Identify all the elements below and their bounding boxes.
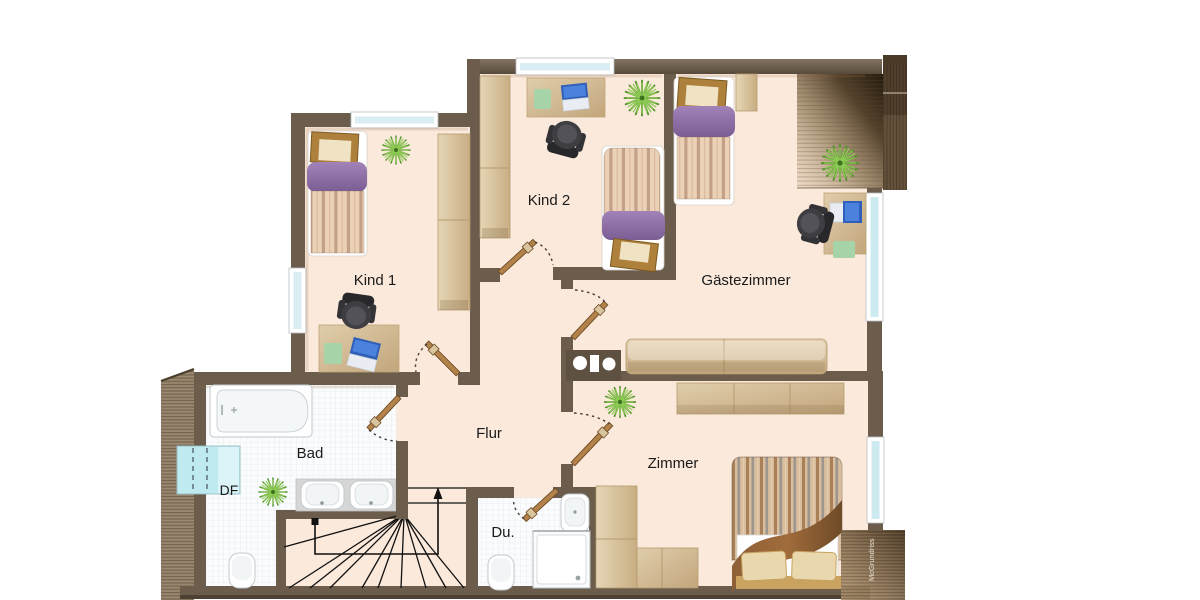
svg-text:DF: DF	[220, 482, 239, 498]
svg-text:Gästezimmer: Gästezimmer	[701, 272, 790, 289]
svg-text:Kind 1: Kind 1	[354, 272, 397, 289]
svg-text:Zimmer: Zimmer	[648, 455, 699, 472]
svg-text:Flur: Flur	[476, 425, 502, 442]
svg-text:Kind 2: Kind 2	[528, 192, 571, 209]
svg-text:Bad: Bad	[297, 445, 324, 462]
svg-text:McGrundriss: McGrundriss	[867, 538, 876, 581]
svg-text:Du.: Du.	[491, 524, 514, 541]
